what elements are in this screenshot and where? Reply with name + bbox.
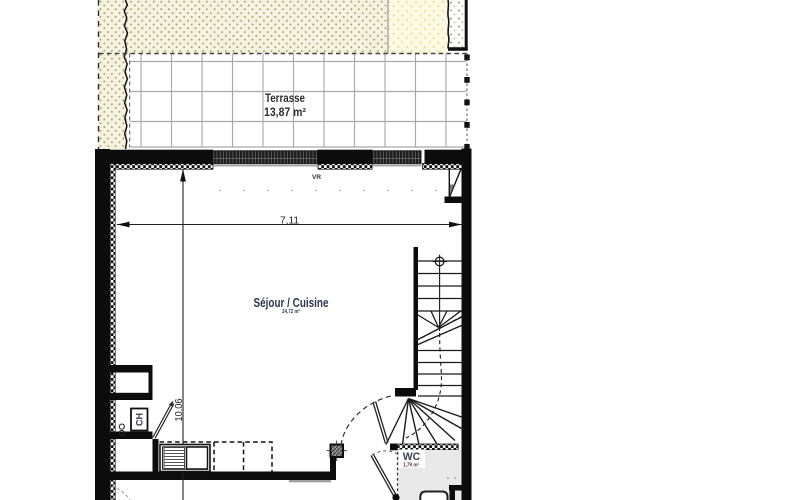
svg-text:13,87 m²: 13,87 m² bbox=[264, 107, 306, 119]
svg-text:24,72 m²: 24,72 m² bbox=[282, 309, 300, 315]
svg-text:Séjour / Cuisine: Séjour / Cuisine bbox=[254, 295, 329, 310]
svg-text:1,79 m²: 1,79 m² bbox=[403, 461, 419, 468]
svg-text:CH: CH bbox=[135, 413, 145, 426]
svg-text:WC: WC bbox=[403, 451, 421, 463]
svg-text:Terrasse: Terrasse bbox=[265, 93, 305, 105]
svg-text:10,06: 10,06 bbox=[174, 398, 185, 421]
svg-text:VR: VR bbox=[312, 174, 321, 181]
svg-text:7,11: 7,11 bbox=[280, 216, 299, 227]
